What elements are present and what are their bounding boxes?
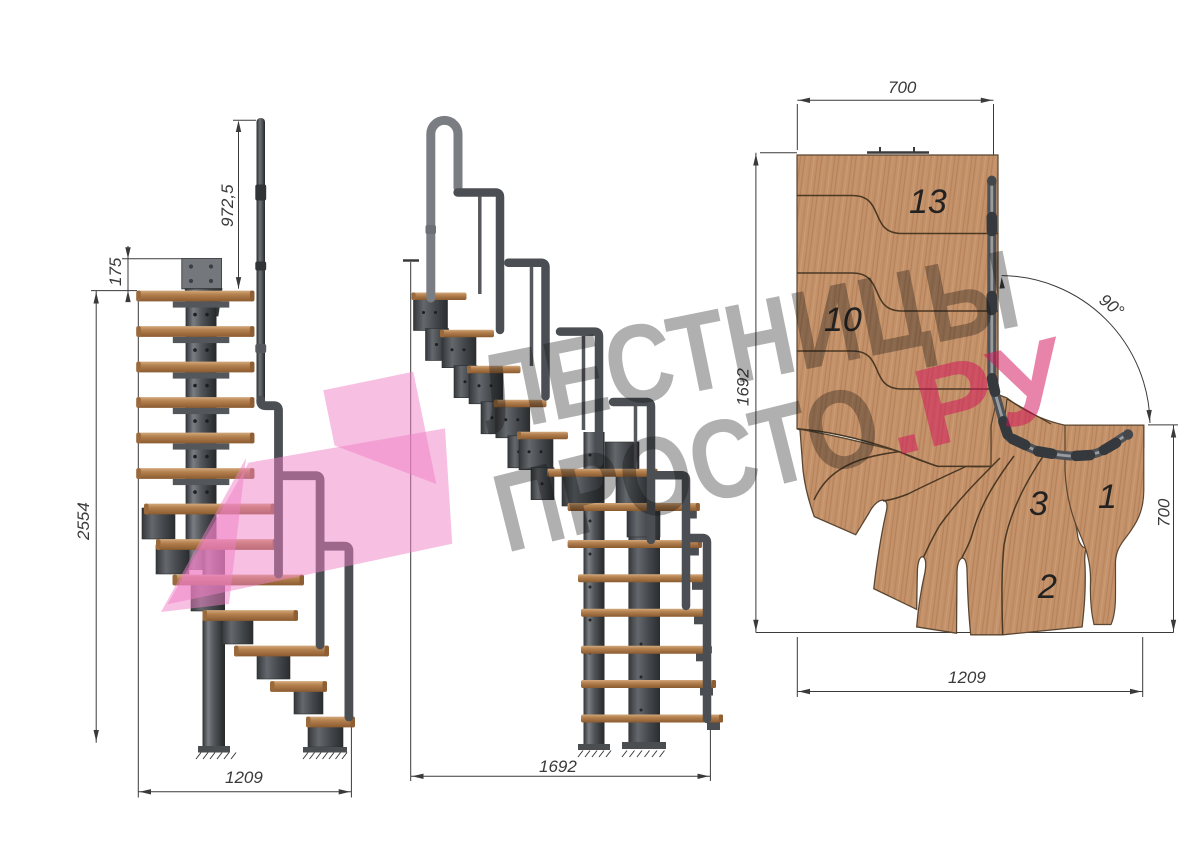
svg-text:2: 2 — [1037, 568, 1057, 606]
svg-text:3: 3 — [1029, 485, 1048, 523]
svg-text:1: 1 — [1098, 478, 1117, 516]
svg-text:1209: 1209 — [225, 768, 263, 787]
svg-text:13: 13 — [909, 183, 947, 221]
svg-text:972,5: 972,5 — [218, 184, 237, 227]
svg-text:175: 175 — [106, 257, 125, 286]
svg-text:2554: 2554 — [74, 502, 93, 541]
svg-text:700: 700 — [888, 78, 917, 97]
svg-text:1209: 1209 — [948, 668, 986, 687]
svg-text:1692: 1692 — [539, 757, 577, 776]
svg-text:700: 700 — [1155, 498, 1174, 527]
